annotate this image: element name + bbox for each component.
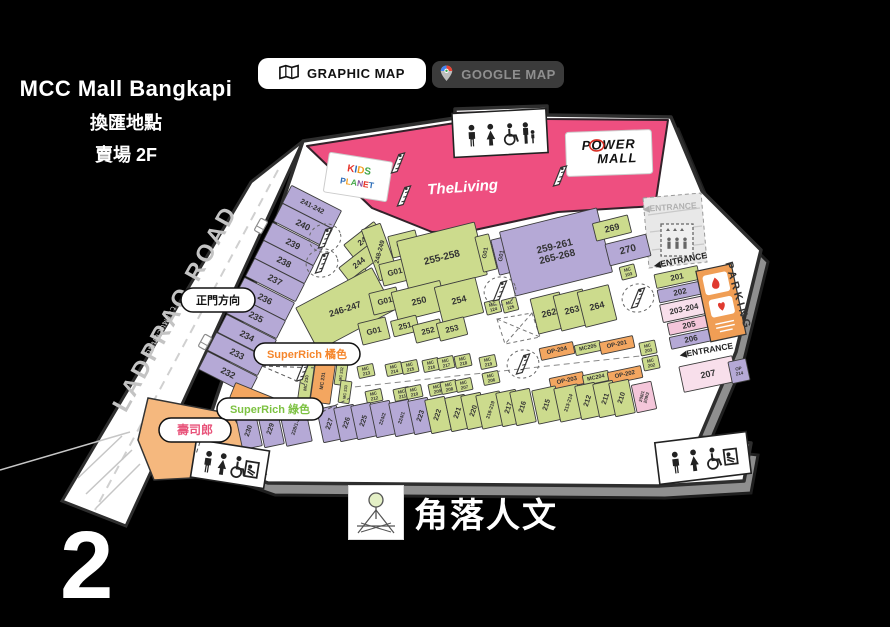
map-unit: OP214 (728, 358, 750, 383)
sushiro-pill: 壽司郎 (159, 418, 231, 442)
superrich-orange-pill: SuperRich 橘色 (254, 343, 360, 365)
front-gate-pill: 正門方向 (181, 288, 255, 312)
power-mall-logo: POWER MALL (565, 130, 652, 177)
brand: 角落人文 (348, 485, 558, 540)
map-unit: MC203 (639, 340, 657, 356)
superrich-green-pill: SuperRich 綠色 (217, 398, 323, 420)
svg-text:SuperRich 綠色: SuperRich 綠色 (230, 402, 310, 416)
page-number: 2 (60, 518, 140, 614)
map-unit: MC202 (642, 355, 660, 371)
svg-text:正門方向: 正門方向 (196, 293, 240, 307)
svg-text:SuperRich 橘色: SuperRich 橘色 (267, 347, 347, 361)
restroom-box (452, 109, 548, 158)
brand-logo (348, 485, 404, 540)
svg-text:MALL: MALL (597, 150, 638, 166)
elevator-icon (661, 224, 693, 256)
page: MCC Mall Bangkapi 換匯地點 賣場 2F GRAPHIC MAP… (0, 0, 890, 627)
brand-name: 角落人文 (414, 488, 558, 537)
svg-text:壽司郎: 壽司郎 (177, 422, 213, 437)
